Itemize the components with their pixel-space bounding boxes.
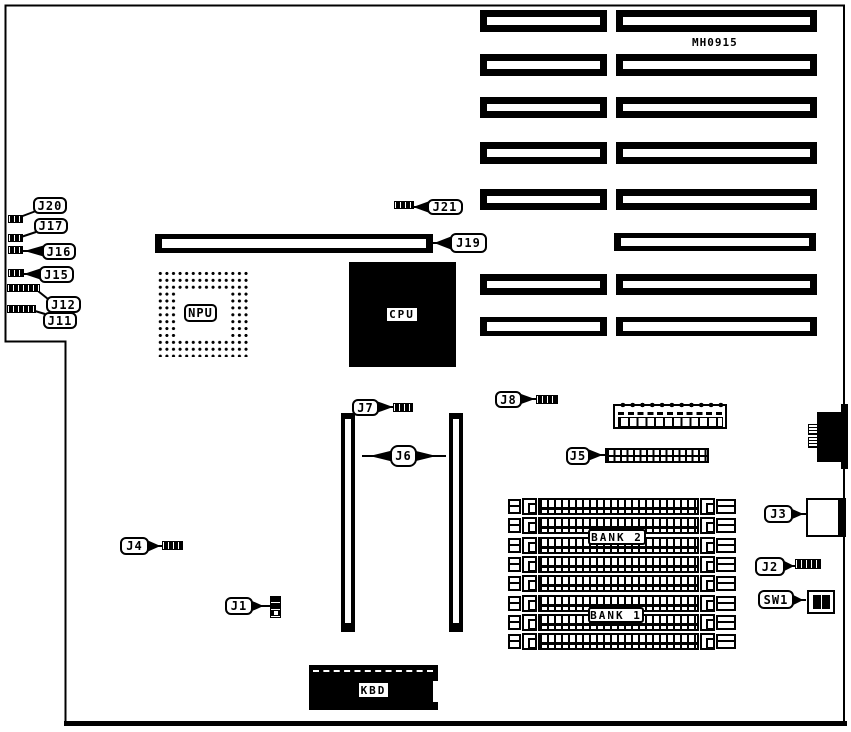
- kbd-connector: KBD: [309, 665, 438, 710]
- j19-slot: [155, 234, 433, 253]
- part-number: MH0915: [692, 36, 748, 49]
- j17-jumper: [8, 234, 23, 242]
- motherboard-diagram: MH0915 NPU CPU: [0, 0, 851, 732]
- cpu-chip-label: CPU: [387, 308, 417, 321]
- isa-slot-4-left: [480, 142, 607, 164]
- power-connector-sockets: [618, 417, 723, 427]
- j4-jumper: [162, 541, 183, 550]
- power-connector: [613, 404, 727, 429]
- j3-port-edge: [838, 500, 844, 535]
- callout-j21: J21: [427, 199, 463, 215]
- simm-slot-8: [508, 633, 736, 650]
- j20-jumper: [8, 215, 23, 223]
- vertical-slot-right: [449, 413, 463, 632]
- din-connector-tab: [841, 404, 848, 469]
- j1-jumper: [270, 596, 281, 618]
- din-pin-lower: [808, 437, 818, 448]
- vertical-slot-left: [341, 413, 355, 632]
- simm-slot-1: [508, 498, 736, 515]
- power-connector-dashes: [618, 412, 724, 415]
- isa-slot-5-right: [616, 189, 817, 210]
- j7-jumper: [393, 403, 413, 412]
- din-connector-body: [817, 412, 843, 462]
- callout-j3: J3: [764, 505, 793, 523]
- isa-slot-2-right: [616, 54, 817, 76]
- isa-slot-3-left: [480, 97, 607, 118]
- sw1-dip-switch: [807, 590, 835, 614]
- bank1-label: BANK 1: [588, 607, 644, 623]
- power-connector-pins: [618, 401, 724, 409]
- callout-sw1: SW1: [758, 590, 794, 609]
- callout-j16: J16: [42, 243, 76, 260]
- isa-slot-6-8bit: [614, 233, 816, 251]
- callout-j1: J1: [225, 597, 253, 615]
- isa-slot-2-left: [480, 54, 607, 76]
- isa-slot-3-right: [616, 97, 817, 118]
- isa-slot-7-left: [480, 274, 607, 295]
- j15-jumper: [8, 269, 24, 277]
- callout-j7: J7: [352, 399, 379, 416]
- callout-j2: J2: [755, 557, 785, 576]
- simm-slot-4: [508, 556, 736, 573]
- npu-socket: NPU: [156, 269, 248, 357]
- j8-jumper: [536, 395, 558, 404]
- callout-j5: J5: [566, 447, 590, 465]
- callout-j4: J4: [120, 537, 149, 555]
- callout-j19: J19: [450, 233, 487, 253]
- board-bottom-edge: [64, 721, 847, 726]
- isa-slot-4-right: [616, 142, 817, 164]
- callout-j12: J12: [46, 296, 81, 313]
- callout-j20: J20: [33, 197, 67, 214]
- isa-slot-1-left: [480, 10, 607, 32]
- din-pin-upper: [808, 424, 818, 435]
- isa-slot-8-right: [616, 317, 817, 336]
- isa-slot-8-left: [480, 317, 607, 336]
- isa-slot-1-right: [616, 10, 817, 32]
- j16-jumper: [8, 246, 23, 254]
- callout-j6: J6: [390, 445, 417, 467]
- callout-j17: J17: [34, 218, 68, 234]
- cpu-chip: CPU: [349, 262, 456, 367]
- j11-jumper: [7, 305, 36, 313]
- bank2-label: BANK 2: [588, 529, 646, 545]
- sw1-switch-1: [813, 595, 821, 609]
- kbd-notch: [433, 681, 438, 702]
- kbd-dashed-line: [313, 670, 433, 672]
- npu-chip-label: NPU: [184, 304, 217, 322]
- j5-connector: [605, 448, 709, 463]
- simm-slot-5: [508, 575, 736, 592]
- callout-j11: J11: [43, 312, 77, 329]
- j12-jumper: [7, 284, 40, 292]
- isa-slot-5-left: [480, 189, 607, 210]
- j21-jumper: [394, 201, 414, 209]
- callout-j8: J8: [495, 391, 522, 408]
- isa-slot-7-right: [616, 274, 817, 295]
- callout-j15: J15: [39, 266, 74, 283]
- sw1-switch-2: [822, 595, 830, 609]
- j3-port: [806, 498, 846, 537]
- kbd-label: KBD: [359, 683, 388, 697]
- j2-jumper: [795, 559, 821, 569]
